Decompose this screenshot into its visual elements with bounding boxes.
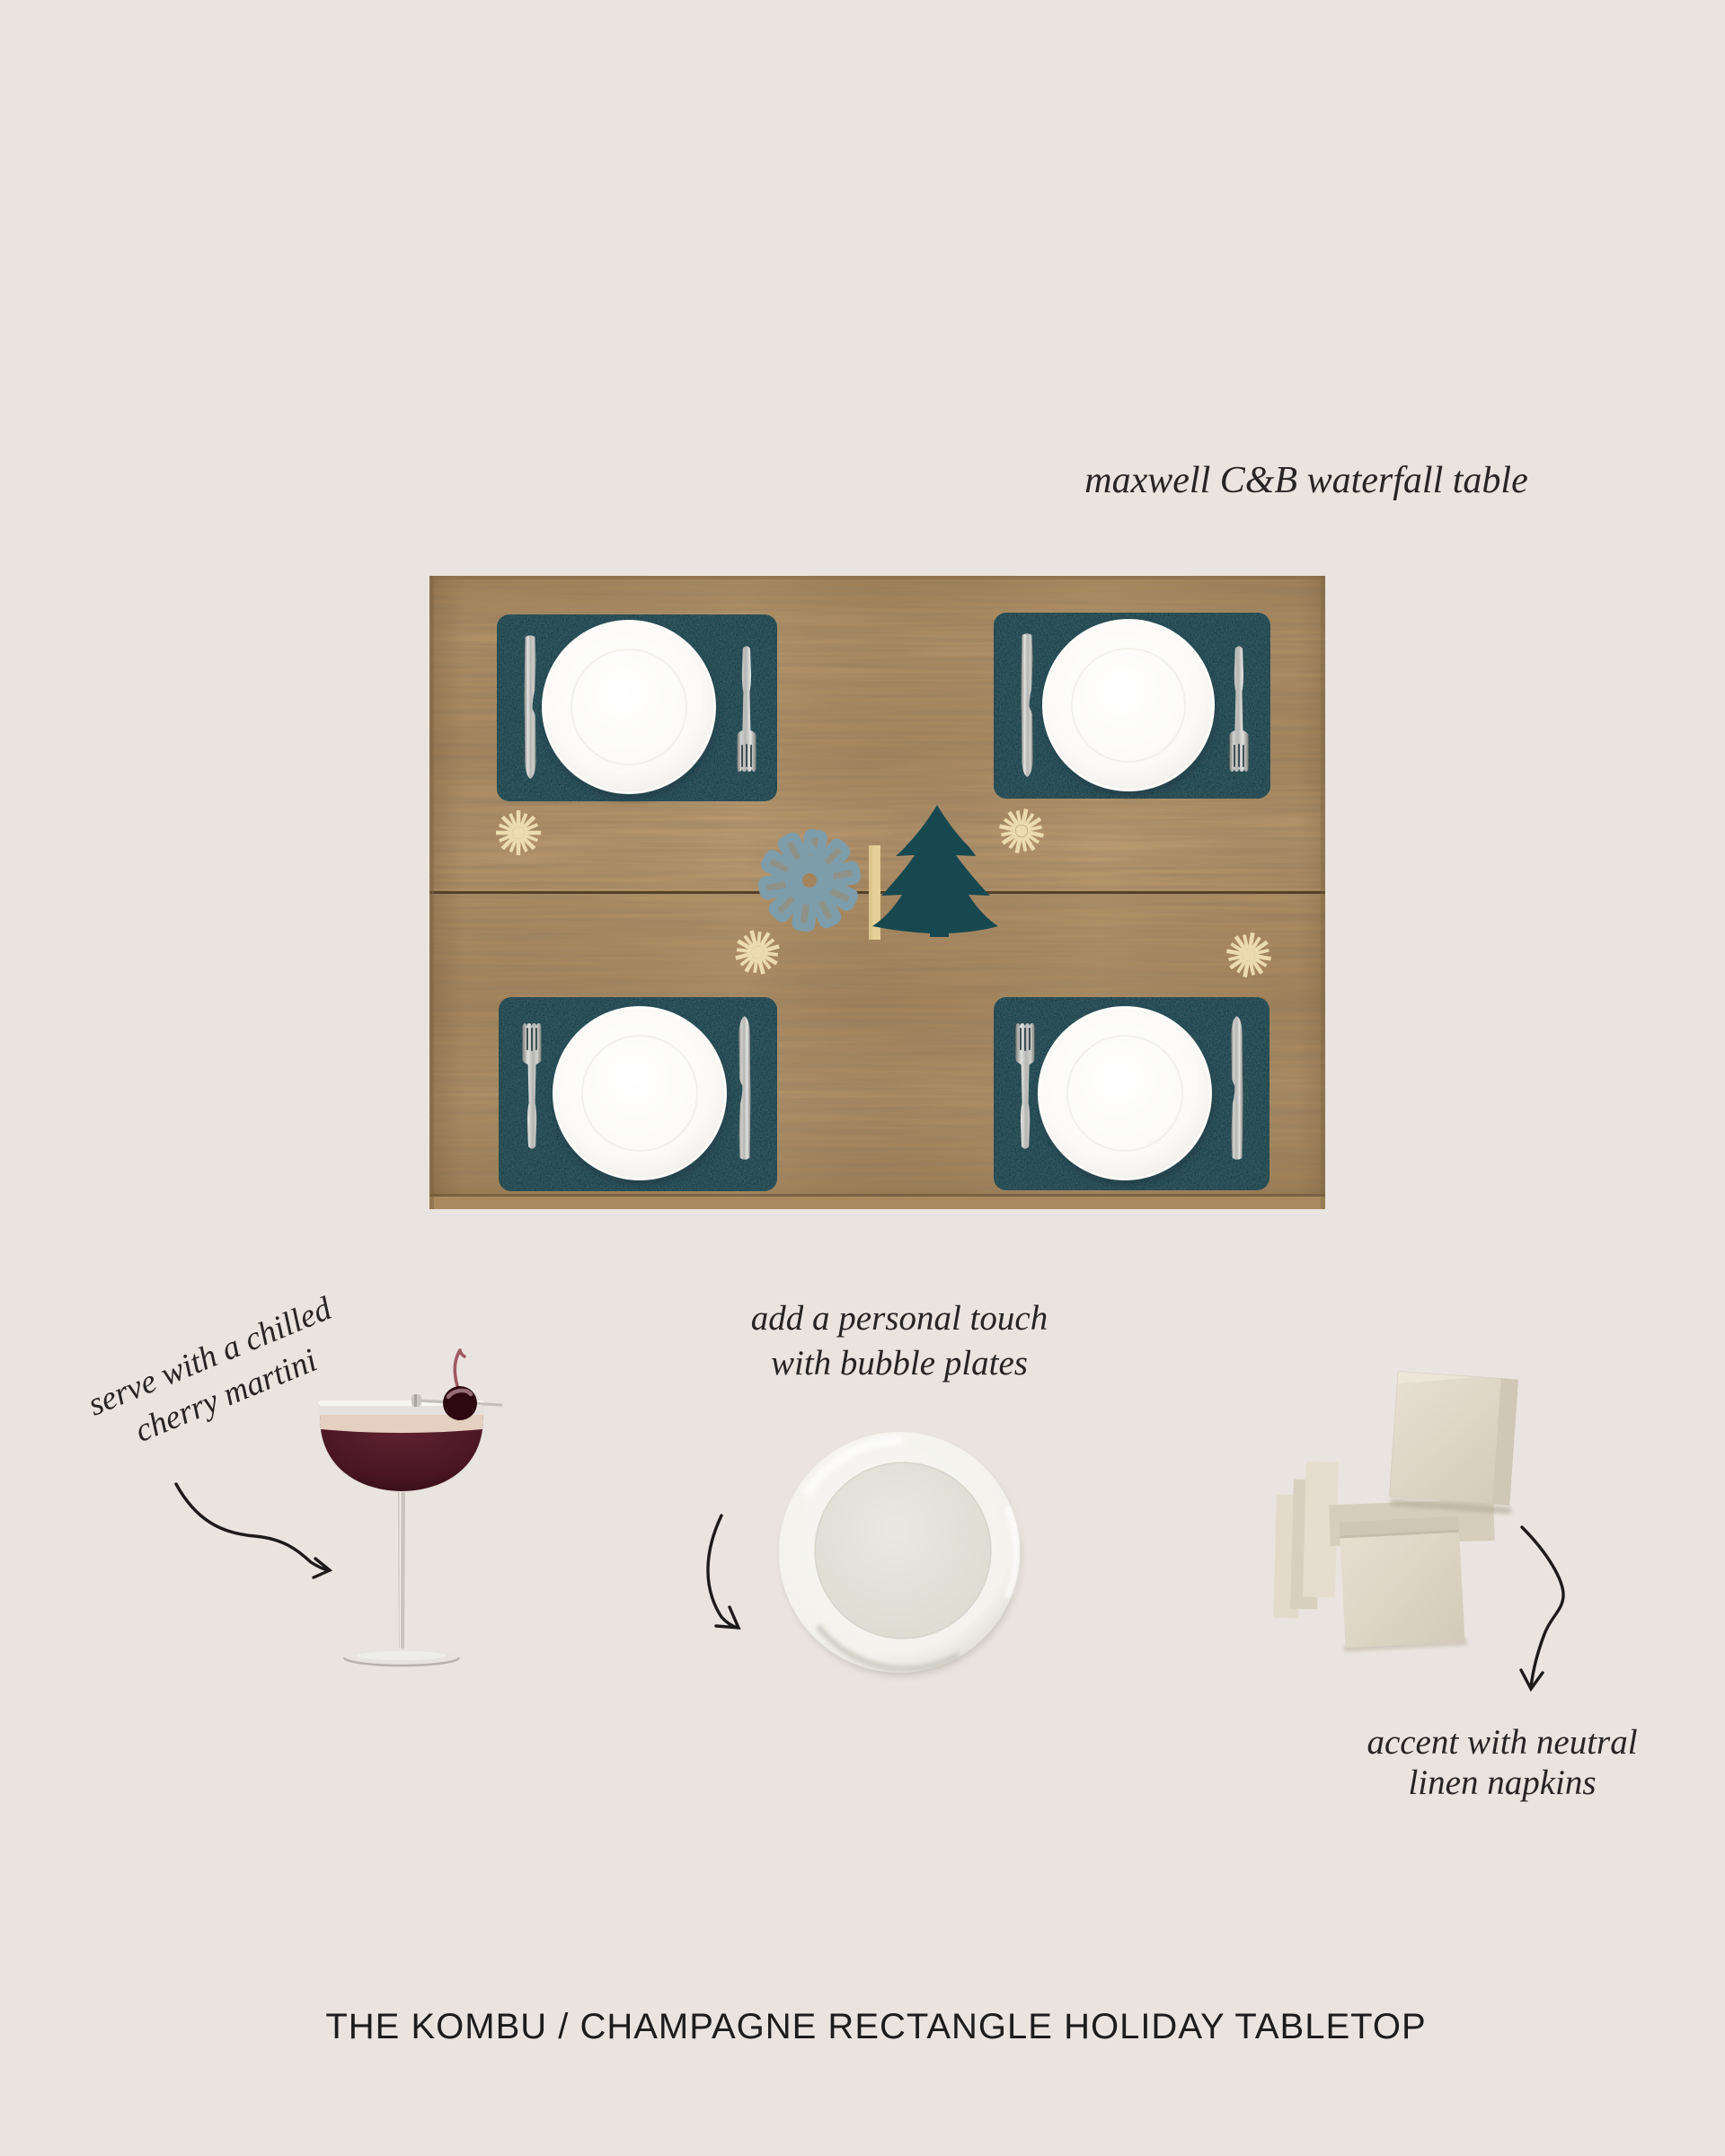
svg-text:accent with neutral: accent with neutral [1367, 1723, 1637, 1762]
svg-text:linen napkins: linen napkins [1408, 1763, 1596, 1802]
svg-text:THE KOMBU / CHAMPAGNE RECTANGL: THE KOMBU / CHAMPAGNE RECTANGLE HOLIDAY … [325, 2007, 1426, 2046]
svg-text:with bubble plates: with bubble plates [771, 1344, 1028, 1383]
svg-text:add a personal touch: add a personal touch [751, 1299, 1048, 1338]
svg-text:maxwell C&B waterfall table: maxwell C&B waterfall table [1084, 460, 1527, 501]
